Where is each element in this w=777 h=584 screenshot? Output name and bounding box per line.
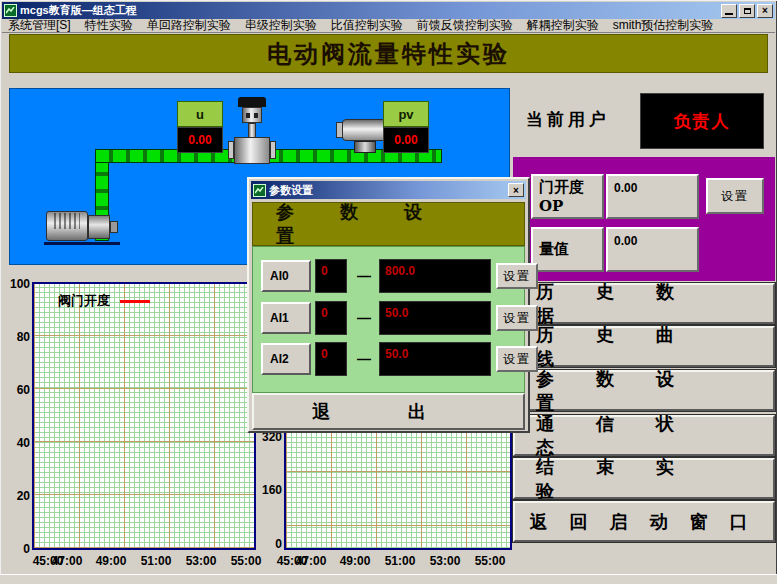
range-dash: —: [352, 259, 376, 293]
menu-bar: 系统管理[S] 特性实验 单回路控制实验 串级控制实验 比值控制实验 前馈反馈控…: [2, 19, 775, 33]
param-row-ai2: AI2 0 — 50.0 设置: [253, 342, 524, 376]
low-value: 0: [315, 259, 347, 293]
xtick: 51:00: [382, 554, 418, 568]
flow-value-display: 0.00: [606, 227, 699, 272]
xtick: 53:00: [183, 554, 219, 568]
ai2-set-button[interactable]: 设置: [496, 346, 538, 372]
valve-body-icon: [234, 137, 270, 164]
xtick: 51:00: [138, 554, 174, 568]
pv-label: pv: [383, 101, 429, 127]
pv-value: 0.00: [383, 127, 429, 153]
xtick: 47:00: [293, 554, 329, 568]
flow-sensor-icon: [342, 119, 388, 141]
menu-item-feedforward-exp[interactable]: 前馈反馈控制实验: [417, 17, 513, 34]
ytick: 160: [260, 483, 282, 497]
ytick: 0: [260, 537, 282, 551]
xtick: 47:00: [49, 554, 85, 568]
valve-opening-plot-area: [32, 282, 256, 550]
high-value: 800.0: [379, 259, 491, 293]
channel-label: AI2: [261, 343, 311, 375]
ytick: 20: [8, 489, 30, 503]
close-icon[interactable]: ×: [757, 4, 773, 18]
menu-item-decoupling-exp[interactable]: 解耦控制实验: [527, 17, 599, 34]
minimize-icon[interactable]: [721, 4, 737, 18]
dialog-body: AI0 0 — 800.0 设置 AI1 0 — 50.0 设置 AI2 0 —…: [252, 246, 525, 393]
xtick: 55:00: [228, 554, 264, 568]
u-label: u: [177, 101, 223, 127]
param-row-ai1: AI1 0 — 50.0 设置: [253, 301, 524, 335]
valve-actuator-icon: [238, 97, 266, 107]
op-set-button[interactable]: 设置: [706, 178, 764, 214]
xtick: 55:00: [472, 554, 508, 568]
ytick: 100: [8, 277, 30, 291]
dialog-close-icon[interactable]: ×: [508, 183, 524, 197]
flow-value-label: 量值: [531, 227, 604, 272]
comm-status-button[interactable]: 通信状态: [513, 415, 775, 456]
end-experiment-button[interactable]: 结束实验: [513, 458, 775, 499]
range-dash: —: [352, 342, 376, 376]
window-title: mcgs教育版—组态工程: [20, 3, 721, 18]
menu-item-cascade-exp[interactable]: 串级控制实验: [245, 17, 317, 34]
restore-icon[interactable]: [739, 4, 755, 18]
menu-item-smith-exp[interactable]: smith预估控制实验: [613, 17, 714, 34]
xtick: 49:00: [337, 554, 373, 568]
dialog-header: 参数设置: [252, 202, 525, 246]
history-data-button[interactable]: 历史数据: [513, 283, 775, 324]
ytick: 40: [8, 436, 30, 450]
valve-opening-chart: 阀门开度 100 80 60 40 20 0 45:00 47:00 49:00…: [8, 278, 258, 572]
mcgs-window: mcgs教育版—组态工程 × 系统管理[S] 特性实验 单回路控制实验 串级控制…: [0, 0, 777, 584]
param-settings-dialog: 参数设置 × 参数设置 AI0 0 — 800.0 设置 AI1 0 — 50.…: [247, 177, 530, 433]
low-value: 0: [315, 342, 347, 376]
low-value: 0: [315, 301, 347, 335]
xtick: 49:00: [93, 554, 129, 568]
channel-label: AI1: [261, 302, 311, 334]
legend-label: 阀门开度: [58, 292, 110, 310]
dialog-title-bar[interactable]: 参数设置 ×: [251, 181, 526, 199]
legend-line-sample: [120, 300, 150, 303]
ai0-set-button[interactable]: 设置: [496, 263, 538, 289]
param-settings-button[interactable]: 参数设置: [513, 370, 775, 411]
ytick: 80: [8, 330, 30, 344]
dialog-app-icon: [253, 184, 266, 197]
range-dash: —: [352, 301, 376, 335]
ytick: 60: [8, 383, 30, 397]
history-curve-button[interactable]: 历史曲线: [513, 326, 775, 367]
menu-item-single-loop-exp[interactable]: 单回路控制实验: [147, 17, 231, 34]
current-user-value: 负责人: [640, 93, 764, 149]
ai1-set-button[interactable]: 设置: [496, 305, 538, 331]
exit-button[interactable]: 退出: [252, 393, 525, 430]
chart-legend: 阀门开度: [58, 292, 150, 310]
valve-opening-op-label: 门开度OP: [531, 174, 604, 219]
taskbar: [0, 574, 777, 584]
page-title: 电动阀流量特性实验: [9, 34, 768, 73]
u-value: 0.00: [177, 127, 223, 153]
control-panel: 门开度OP 0.00 设置 量值 0.00: [513, 157, 775, 281]
high-value: 50.0: [379, 342, 491, 376]
mcgs-app-icon: [4, 4, 17, 17]
xtick: 53:00: [427, 554, 463, 568]
menu-item-characteristic-exp[interactable]: 特性实验: [85, 17, 133, 34]
u-display: u 0.00: [177, 101, 223, 153]
valve-opening-op-input[interactable]: 0.00: [606, 174, 699, 219]
channel-label: AI0: [261, 260, 311, 292]
dialog-title: 参数设置: [269, 183, 508, 198]
pv-display: pv 0.00: [383, 101, 429, 153]
ytick: 0: [8, 542, 30, 556]
current-user-label: 当前用户: [526, 108, 610, 131]
return-start-window-button[interactable]: 返回启动窗口: [513, 501, 775, 542]
param-row-ai0: AI0 0 — 800.0 设置: [253, 259, 524, 293]
menu-item-system-manage[interactable]: 系统管理[S]: [8, 17, 71, 34]
high-value: 50.0: [379, 301, 491, 335]
menu-item-ratio-exp[interactable]: 比值控制实验: [331, 17, 403, 34]
